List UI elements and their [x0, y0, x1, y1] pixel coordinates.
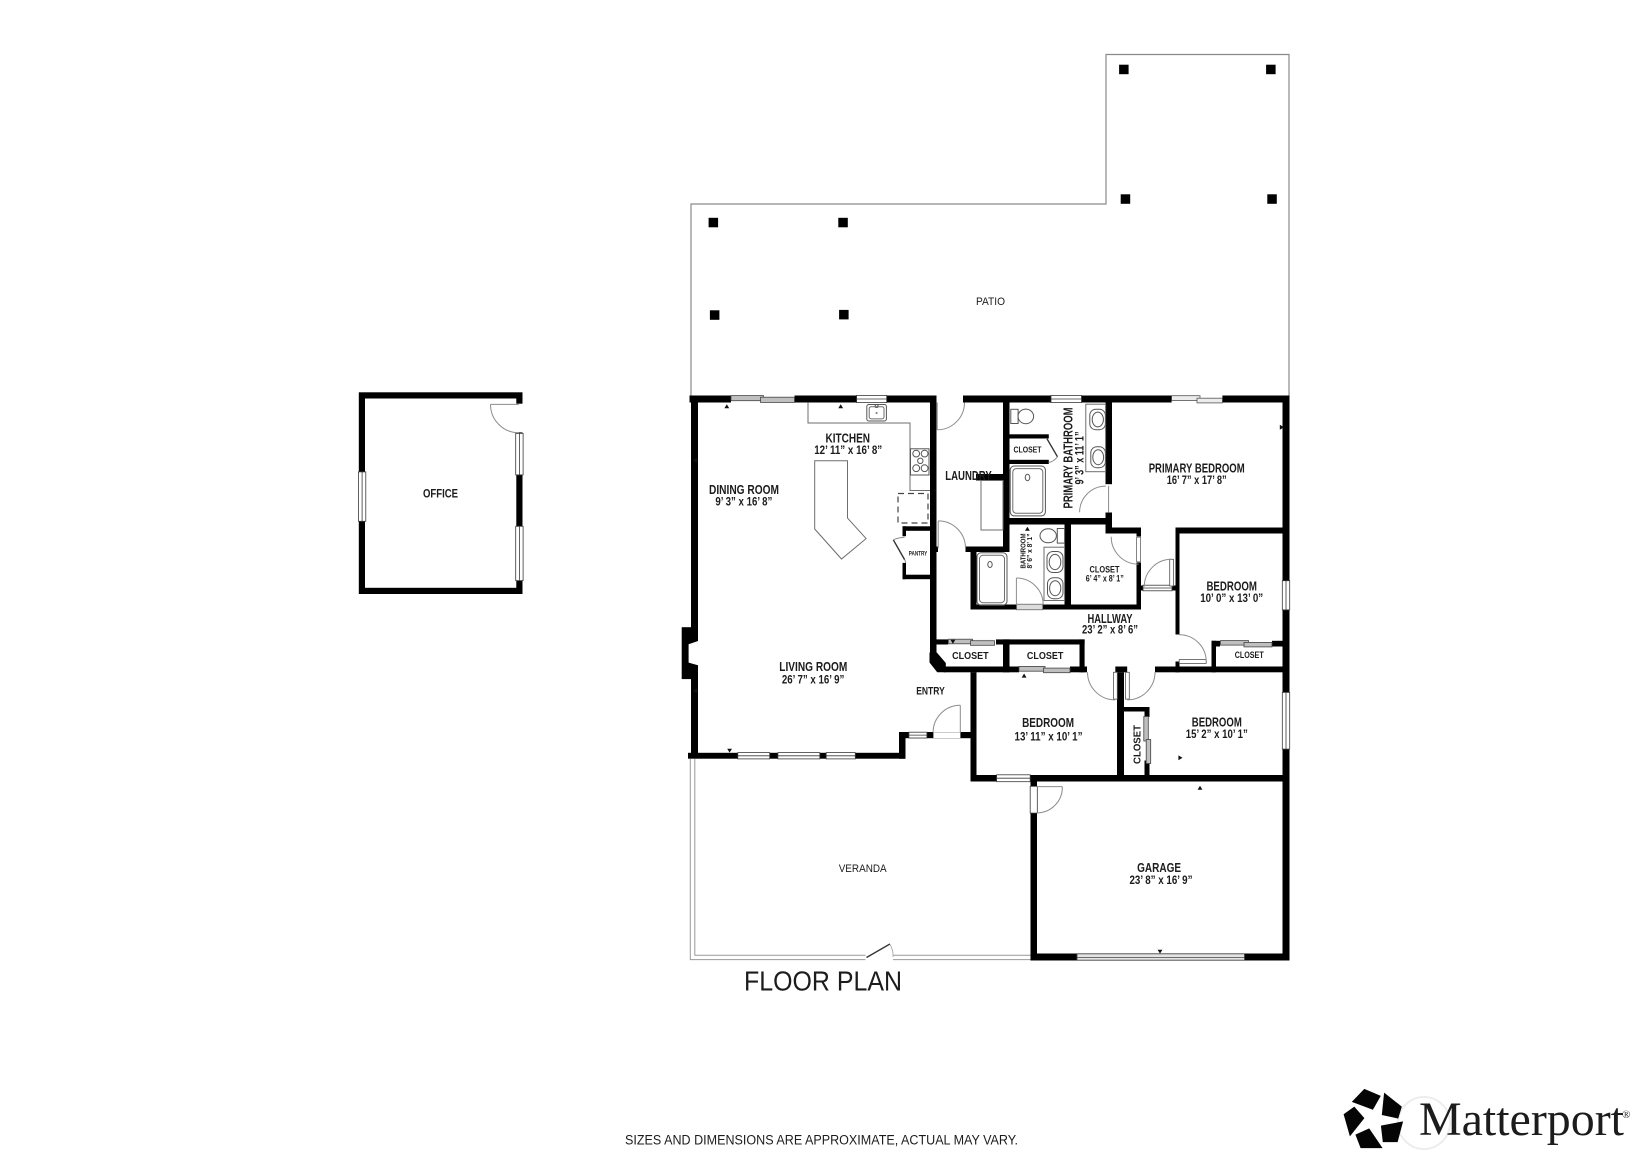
svg-text:BEDROOM: BEDROOM: [1192, 716, 1242, 730]
svg-text:FLOOR PLAN: FLOOR PLAN: [744, 966, 902, 997]
svg-text:PATIO: PATIO: [976, 296, 1005, 308]
svg-text:KITCHEN: KITCHEN: [826, 432, 871, 446]
svg-text:12’ 11” x 16’ 8”: 12’ 11” x 16’ 8”: [814, 445, 882, 457]
svg-text:23’ 2” x 8’ 6”: 23’ 2” x 8’ 6”: [1082, 625, 1138, 637]
svg-text:10’ 0” x 13’ 0”: 10’ 0” x 13’ 0”: [1200, 593, 1263, 605]
svg-text:PRIMARY BEDROOM: PRIMARY BEDROOM: [1149, 462, 1245, 476]
svg-text:BEDROOM: BEDROOM: [1022, 716, 1074, 730]
svg-text:LIVING ROOM: LIVING ROOM: [779, 660, 847, 674]
svg-text:LAUNDRY: LAUNDRY: [945, 469, 992, 483]
svg-text:®: ®: [1622, 1109, 1630, 1121]
svg-text:9’ 3” x 16’ 8”: 9’ 3” x 16’ 8”: [715, 497, 772, 509]
svg-text:9’ 3” x 11’ 1”: 9’ 3” x 11’ 1”: [1075, 432, 1087, 485]
svg-text:8’ 6” x 8’ 1”: 8’ 6” x 8’ 1”: [1027, 534, 1034, 569]
svg-text:CLOSET: CLOSET: [1235, 650, 1264, 661]
svg-text:VERANDA: VERANDA: [839, 863, 888, 875]
svg-text:26’ 7” x 16’ 9”: 26’ 7” x 16’ 9”: [782, 675, 845, 687]
svg-text:Matterport: Matterport: [1419, 1093, 1625, 1146]
svg-text:PRIMARY BATHROOM: PRIMARY BATHROOM: [1062, 408, 1076, 509]
svg-text:PANTRY: PANTRY: [909, 551, 928, 558]
svg-text:SIZES AND DIMENSIONS ARE APPRO: SIZES AND DIMENSIONS ARE APPROXIMATE, AC…: [625, 1133, 1018, 1148]
svg-text:OFFICE: OFFICE: [423, 489, 458, 501]
svg-text:6’ 4” x 8’ 1”: 6’ 4” x 8’ 1”: [1086, 574, 1124, 584]
svg-text:CLOSET: CLOSET: [1027, 650, 1064, 662]
svg-text:16’ 7” x 17’ 8”: 16’ 7” x 17’ 8”: [1167, 475, 1227, 487]
svg-text:13’ 11” x 10’ 1”: 13’ 11” x 10’ 1”: [1015, 732, 1083, 744]
svg-text:CLOSET: CLOSET: [952, 650, 989, 662]
svg-text:DINING ROOM: DINING ROOM: [709, 483, 779, 497]
svg-text:CLOSET: CLOSET: [1014, 446, 1042, 455]
svg-text:ENTRY: ENTRY: [916, 686, 945, 698]
svg-text:BATHROOM: BATHROOM: [1019, 534, 1028, 569]
svg-text:GARAGE: GARAGE: [1137, 861, 1181, 875]
svg-text:23’ 8” x 16’ 9”: 23’ 8” x 16’ 9”: [1130, 875, 1193, 887]
svg-text:CLOSET: CLOSET: [1133, 725, 1144, 764]
svg-text:15’ 2” x 10’ 1”: 15’ 2” x 10’ 1”: [1186, 729, 1248, 741]
svg-text:BEDROOM: BEDROOM: [1206, 579, 1257, 593]
